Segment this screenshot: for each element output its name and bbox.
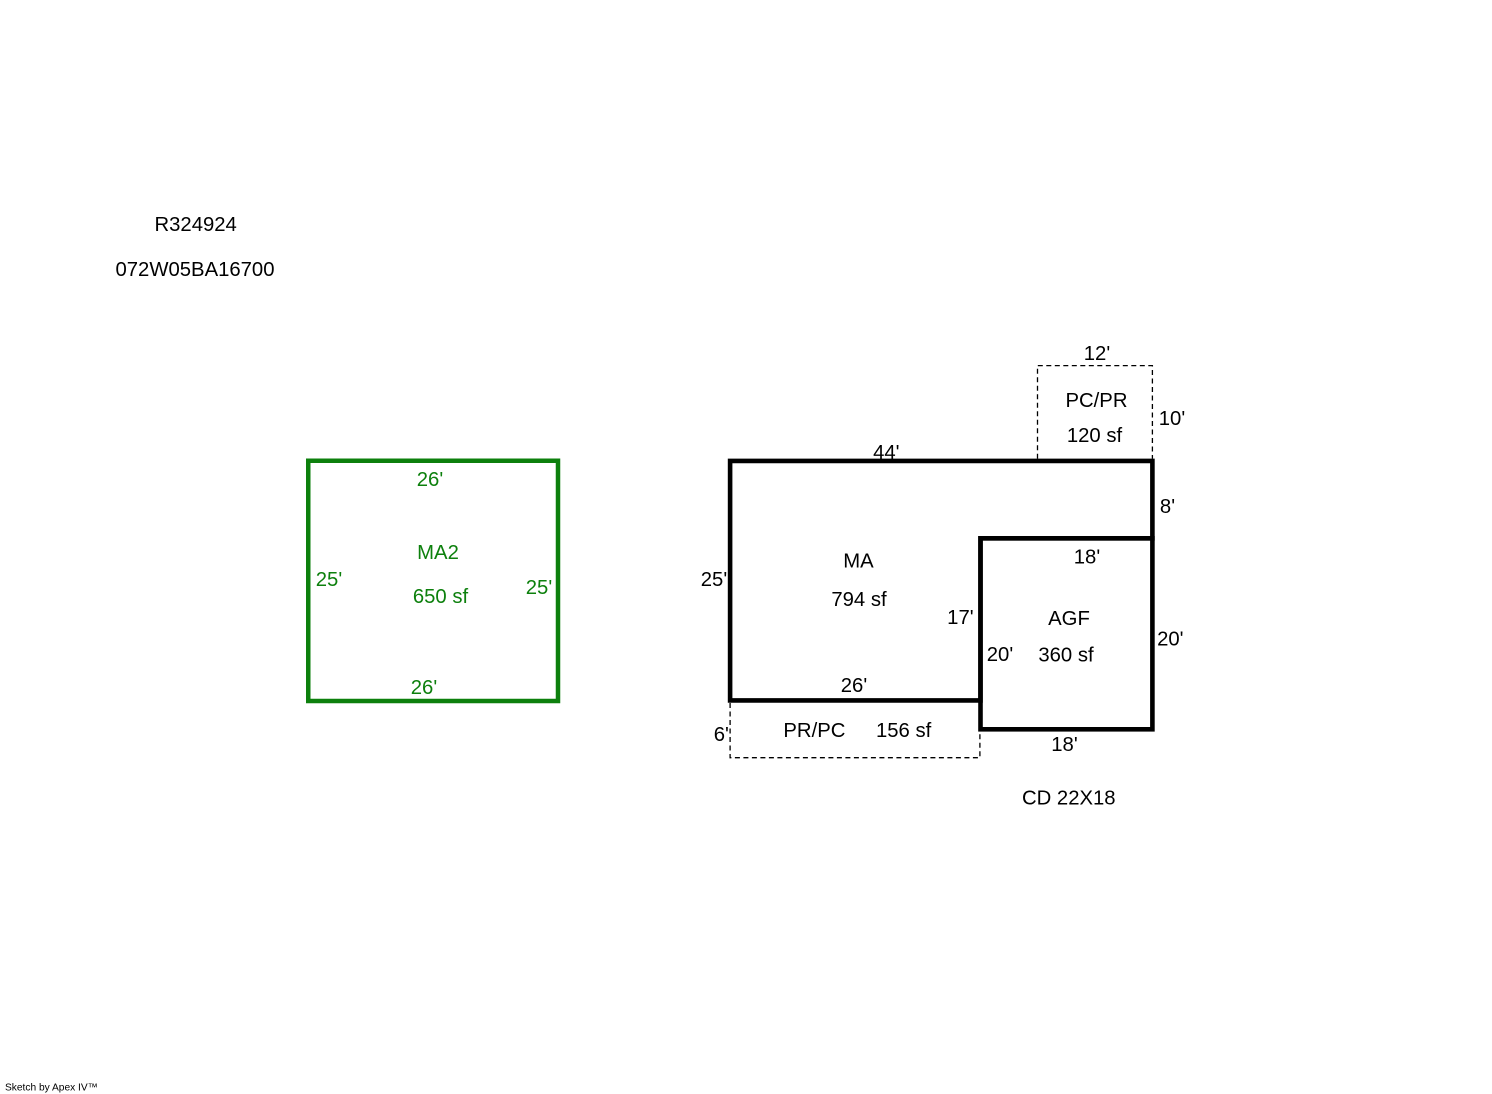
svg-text:360 sf: 360 sf xyxy=(1038,645,1094,667)
svg-text:8': 8' xyxy=(1160,496,1175,518)
svg-text:R324924: R324924 xyxy=(155,214,237,236)
svg-text:794 sf: 794 sf xyxy=(831,589,887,611)
svg-text:6': 6' xyxy=(714,724,729,746)
svg-text:AGF: AGF xyxy=(1048,608,1090,630)
svg-text:10': 10' xyxy=(1159,408,1185,430)
svg-text:MA2: MA2 xyxy=(417,542,459,564)
svg-text:26': 26' xyxy=(417,469,443,491)
svg-text:072W05BA16700: 072W05BA16700 xyxy=(116,259,275,281)
svg-text:18': 18' xyxy=(1074,547,1100,569)
svg-text:20': 20' xyxy=(987,644,1013,666)
svg-text:25': 25' xyxy=(526,577,552,599)
svg-text:PR/PC: PR/PC xyxy=(783,720,845,742)
svg-text:18': 18' xyxy=(1051,734,1077,756)
svg-text:44': 44' xyxy=(873,442,899,464)
svg-text:120 sf: 120 sf xyxy=(1067,425,1123,447)
svg-text:MA: MA xyxy=(843,551,874,573)
svg-text:26': 26' xyxy=(411,677,437,699)
svg-text:17': 17' xyxy=(947,607,973,629)
svg-text:25': 25' xyxy=(316,569,342,591)
svg-text:12': 12' xyxy=(1084,343,1110,365)
svg-text:650 sf: 650 sf xyxy=(413,586,469,608)
svg-text:CD 22X18: CD 22X18 xyxy=(1022,788,1116,810)
svg-text:26': 26' xyxy=(841,675,867,697)
svg-text:Sketch by Apex IV™: Sketch by Apex IV™ xyxy=(5,1082,98,1093)
svg-text:25': 25' xyxy=(701,569,727,591)
svg-text:20': 20' xyxy=(1157,629,1183,651)
svg-text:PC/PR: PC/PR xyxy=(1066,390,1128,412)
svg-text:156 sf: 156 sf xyxy=(876,720,932,742)
